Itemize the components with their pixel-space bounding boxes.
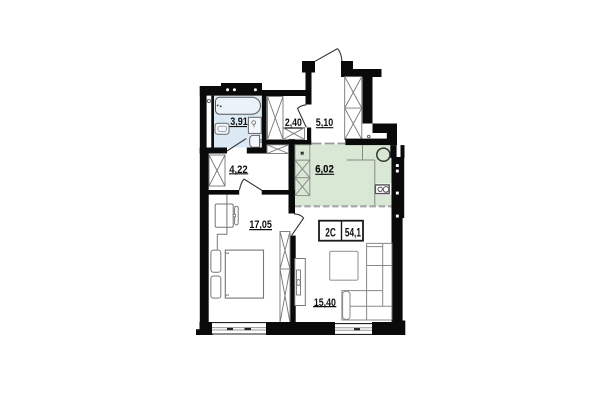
svg-text:2,40: 2,40 — [285, 117, 302, 129]
svg-text:54,1: 54,1 — [345, 225, 361, 239]
svg-text:5,10: 5,10 — [316, 117, 334, 129]
svg-text:2C: 2C — [325, 225, 336, 239]
svg-text:15,40: 15,40 — [314, 297, 336, 309]
